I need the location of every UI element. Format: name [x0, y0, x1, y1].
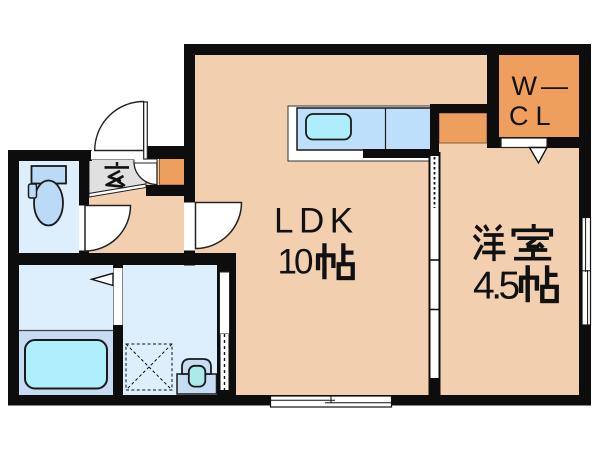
svg-text:4.5: 4.5 [473, 264, 520, 307]
svg-text:CL: CL [509, 101, 558, 131]
svg-text:10: 10 [278, 243, 313, 282]
svg-text:W—: W— [512, 71, 572, 101]
svg-text:LDK: LDK [274, 201, 359, 240]
